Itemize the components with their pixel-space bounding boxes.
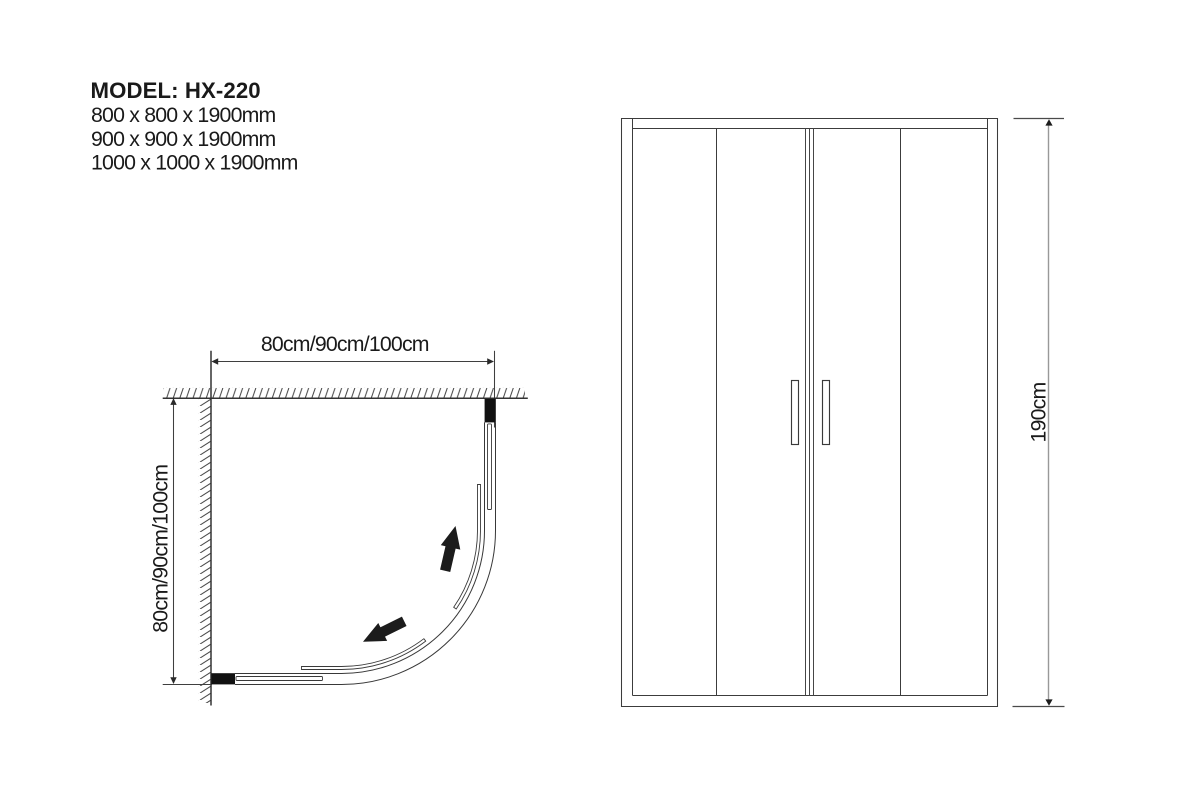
svg-text:1000 x 1000 x 1900mm: 1000 x 1000 x 1900mm [91,151,298,175]
svg-text:190cm: 190cm [1027,382,1051,442]
svg-text:80cm/90cm/100cm: 80cm/90cm/100cm [261,332,429,356]
svg-text:800 x 800 x 1900mm: 800 x 800 x 1900mm [91,103,276,127]
svg-text:MODEL: HX-220: MODEL: HX-220 [91,78,261,103]
svg-text:80cm/90cm/100cm: 80cm/90cm/100cm [149,465,173,633]
svg-text:900 x 900 x 1900mm: 900 x 900 x 1900mm [91,127,276,151]
